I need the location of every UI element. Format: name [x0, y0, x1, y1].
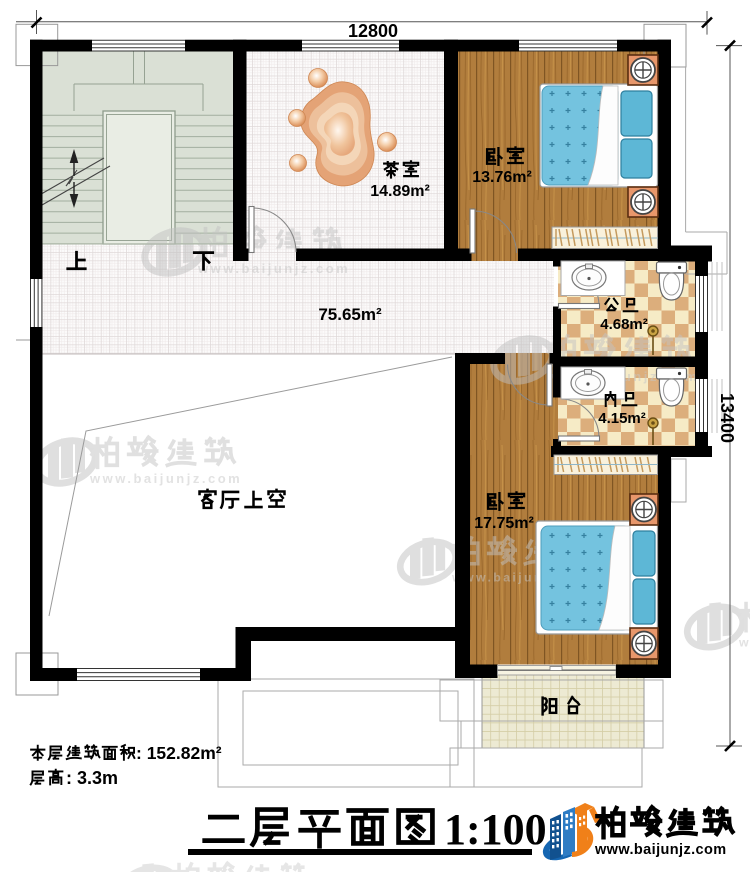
svg-text:75.65m²: 75.65m²: [318, 305, 382, 324]
svg-text:13400: 13400: [717, 393, 737, 443]
svg-text:www.baijunjz.com: www.baijunjz.com: [197, 261, 350, 276]
svg-text:: 152.82m²: : 152.82m²: [136, 743, 222, 763]
svg-text:1:100: 1:100: [444, 805, 547, 854]
svg-text:12800: 12800: [348, 21, 398, 41]
svg-text:17.75m²: 17.75m²: [474, 515, 534, 532]
svg-text:www.baijunjz.com: www.baijunjz.com: [738, 635, 750, 649]
svg-text:www.baijunjz.com: www.baijunjz.com: [89, 471, 242, 486]
svg-text:4.15m²: 4.15m²: [598, 410, 646, 427]
svg-text:14.89m²: 14.89m²: [370, 183, 430, 200]
svg-text:4.68m²: 4.68m²: [600, 316, 648, 333]
svg-text:13.76m²: 13.76m²: [472, 169, 532, 186]
svg-text:: 3.3m: : 3.3m: [66, 768, 118, 788]
svg-text:www.baijunjz.com: www.baijunjz.com: [594, 842, 727, 858]
